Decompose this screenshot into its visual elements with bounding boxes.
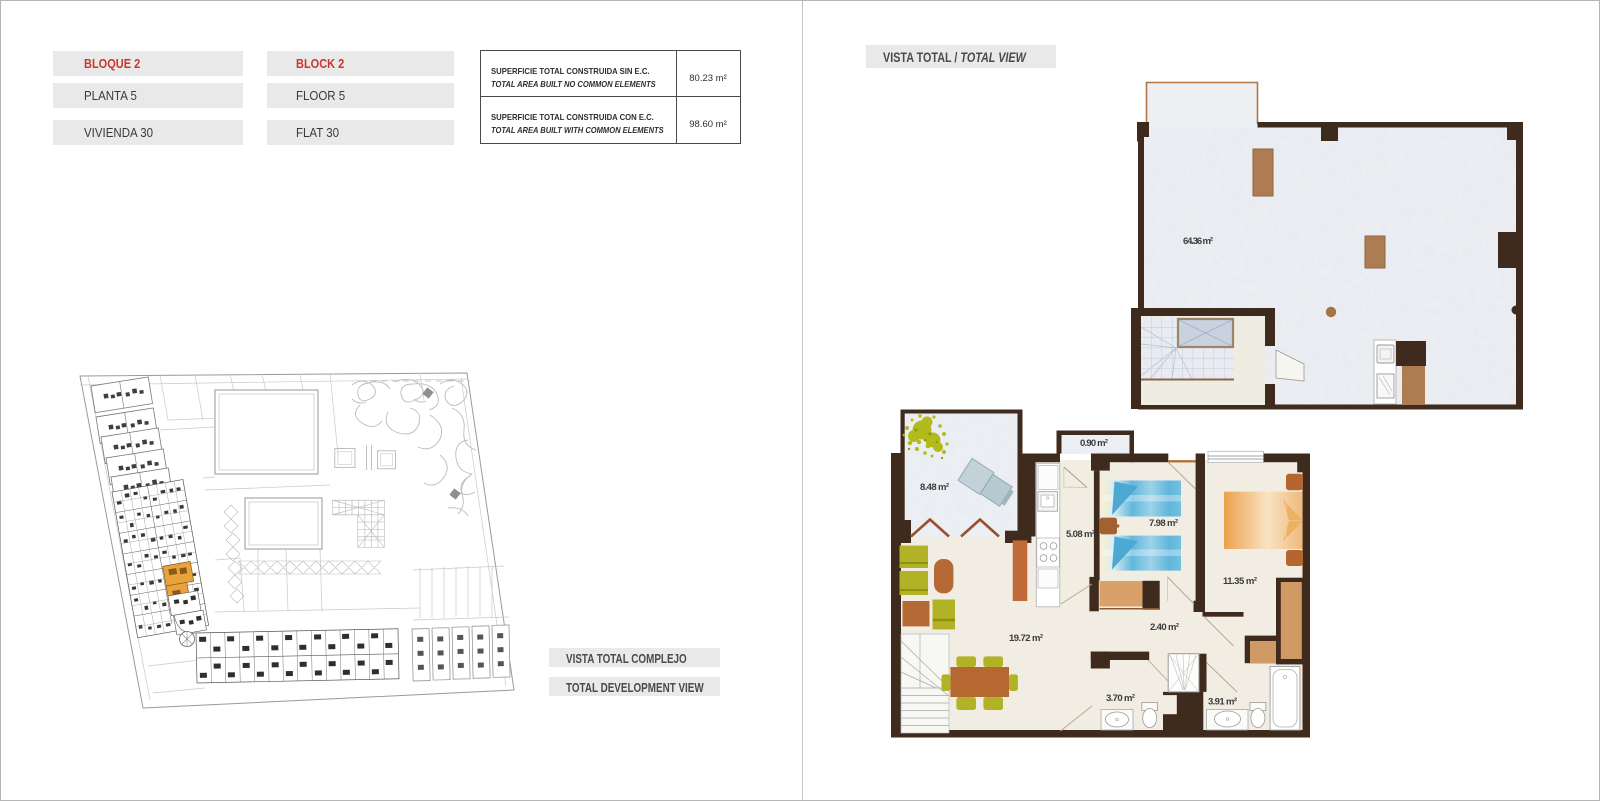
svg-text:0.90 m²: 0.90 m² [1080, 438, 1108, 449]
svg-text:3.70 m²: 3.70 m² [1106, 693, 1135, 704]
svg-text:2.40 m²: 2.40 m² [1150, 622, 1179, 633]
svg-text:8.48 m²: 8.48 m² [920, 482, 949, 493]
svg-text:3.91 m²: 3.91 m² [1208, 697, 1237, 708]
svg-text:11.35 m²: 11.35 m² [1223, 576, 1257, 587]
svg-text:7.98 m²: 7.98 m² [1149, 518, 1178, 529]
svg-text:64.36 m²: 64.36 m² [1183, 236, 1213, 247]
svg-text:19.72 m²: 19.72 m² [1009, 633, 1043, 644]
svg-text:5.08 m²: 5.08 m² [1066, 529, 1095, 540]
